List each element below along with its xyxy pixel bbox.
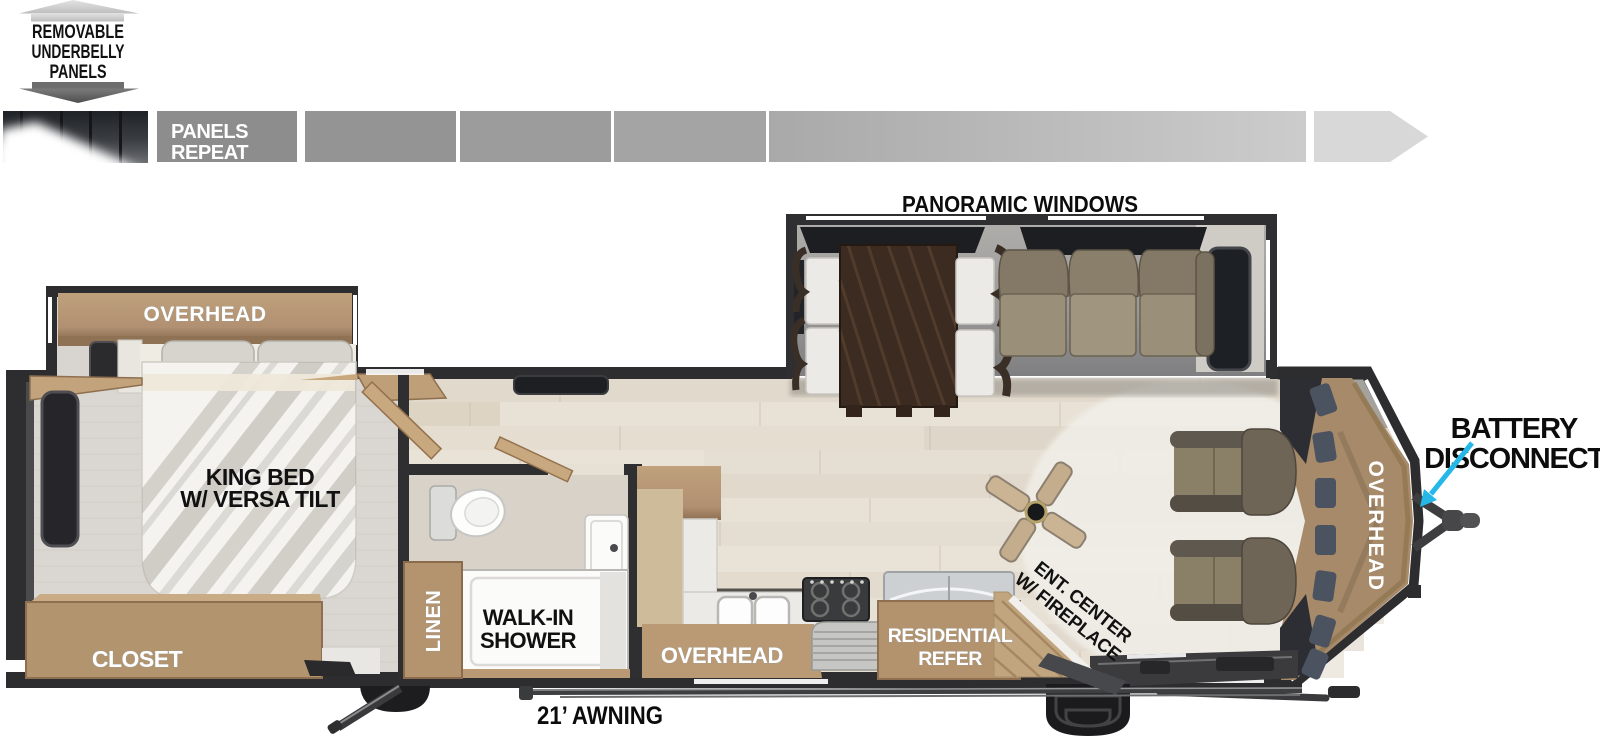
svg-text:BATTERY: BATTERY: [1451, 413, 1578, 445]
svg-text:OVERHEAD: OVERHEAD: [143, 303, 266, 326]
svg-text:REFER: REFER: [918, 648, 982, 670]
svg-text:21’ AWNING: 21’ AWNING: [537, 702, 663, 730]
svg-text:CLOSET: CLOSET: [92, 646, 183, 672]
svg-text:OVERHEAD: OVERHEAD: [661, 643, 783, 668]
svg-text:SHOWER: SHOWER: [480, 628, 577, 653]
svg-text:RESIDENTIAL: RESIDENTIAL: [888, 625, 1013, 647]
svg-text:PANELS: PANELS: [171, 121, 248, 143]
svg-text:REPEAT: REPEAT: [171, 142, 248, 164]
svg-text:WALK-IN: WALK-IN: [483, 605, 574, 630]
svg-text:UNDERBELLY: UNDERBELLY: [32, 42, 125, 63]
svg-text:LINEN: LINEN: [423, 590, 445, 653]
svg-text:PANORAMIC WINDOWS: PANORAMIC WINDOWS: [902, 191, 1138, 217]
svg-text:REMOVABLE: REMOVABLE: [32, 22, 124, 43]
svg-text:PANELS: PANELS: [50, 62, 107, 83]
svg-text:OVERHEAD: OVERHEAD: [1364, 460, 1387, 591]
svg-text:W/ VERSA TILT: W/ VERSA TILT: [180, 486, 340, 512]
